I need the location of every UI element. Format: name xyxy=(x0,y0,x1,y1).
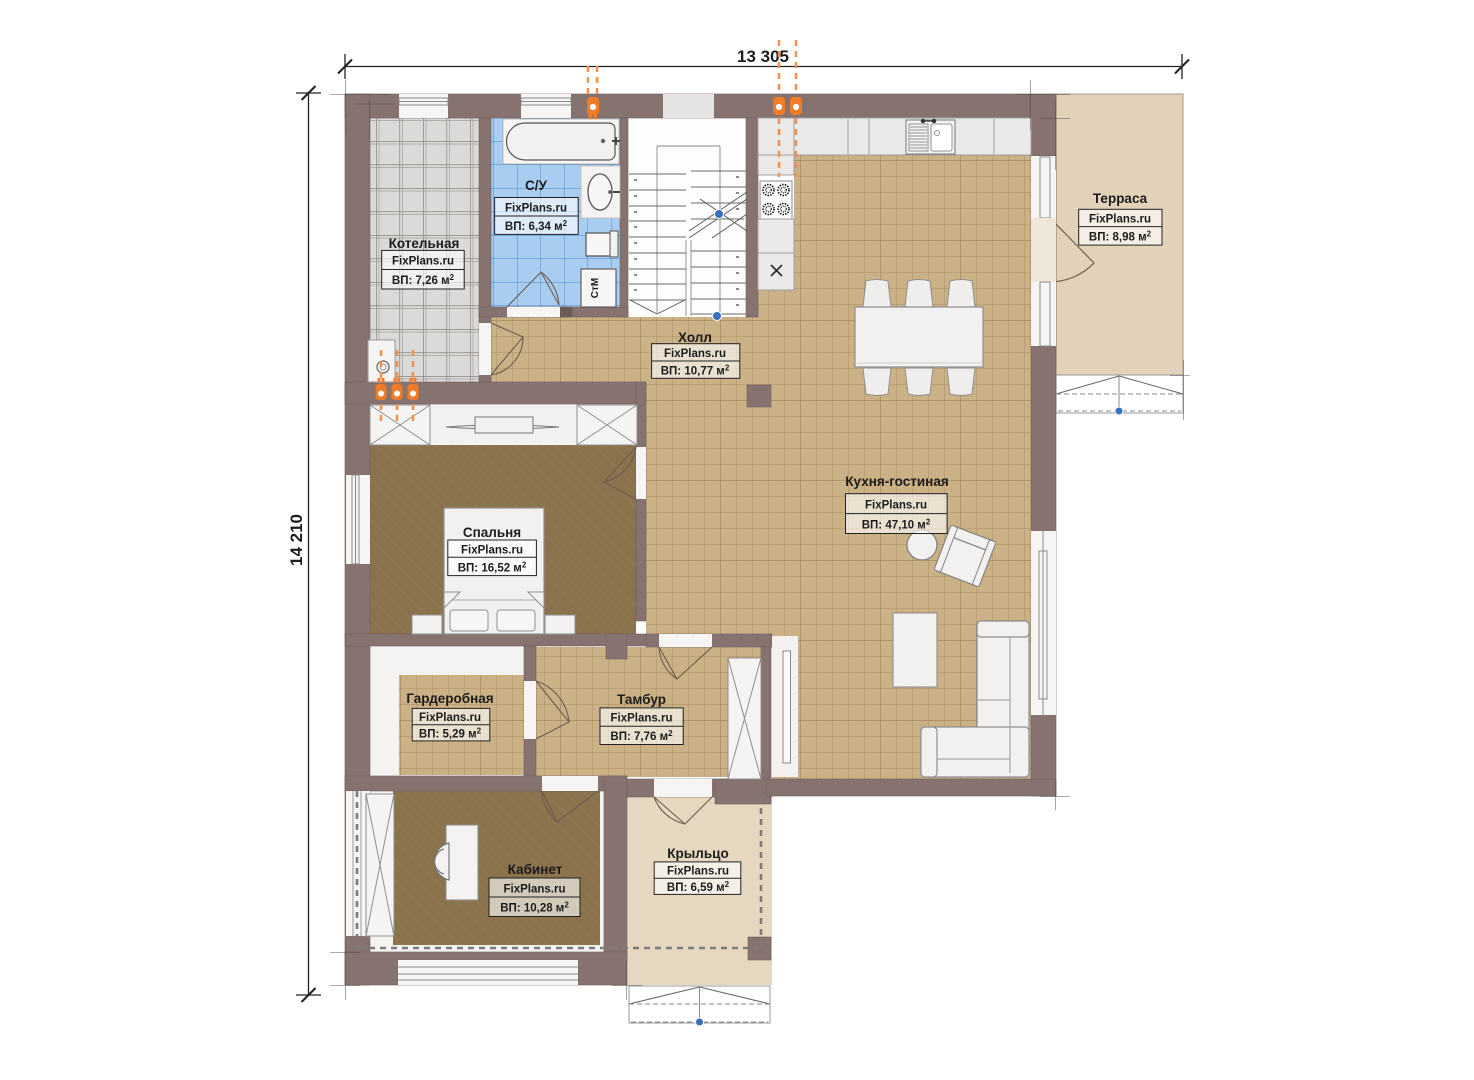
svg-text:ВП: 8,98 м2: ВП: 8,98 м2 xyxy=(1089,230,1152,244)
svg-text:FixPlans.ru: FixPlans.ru xyxy=(667,866,729,878)
svg-text:СтМ: СтМ xyxy=(590,278,601,298)
svg-text:ВП: 10,28 м2: ВП: 10,28 м2 xyxy=(500,901,569,915)
svg-text:С/У: С/У xyxy=(525,178,548,193)
svg-text:FixPlans.ru: FixPlans.ru xyxy=(505,203,567,215)
svg-text:ВП: 5,29 м2: ВП: 5,29 м2 xyxy=(419,727,482,741)
svg-text:FixPlans.ru: FixPlans.ru xyxy=(664,348,726,360)
svg-text:FixPlans.ru: FixPlans.ru xyxy=(1089,214,1151,226)
svg-text:ВП: 6,59 м2: ВП: 6,59 м2 xyxy=(667,880,730,894)
svg-text:ВП: 16,52 м2: ВП: 16,52 м2 xyxy=(458,561,527,575)
svg-text:ВП: 7,26 м2: ВП: 7,26 м2 xyxy=(392,273,455,287)
svg-text:FixPlans.ru: FixPlans.ru xyxy=(611,713,673,725)
svg-text:ВП: 47,10 м2: ВП: 47,10 м2 xyxy=(862,518,931,532)
svg-text:Котельная: Котельная xyxy=(389,236,460,251)
svg-text:13 305: 13 305 xyxy=(737,47,789,66)
svg-text:ВП: 10,77 м2: ВП: 10,77 м2 xyxy=(661,364,730,378)
svg-text:ВП: 6,34 м2: ВП: 6,34 м2 xyxy=(505,219,568,233)
svg-text:Холл: Холл xyxy=(678,330,712,345)
svg-text:ВП: 7,76 м2: ВП: 7,76 м2 xyxy=(610,729,673,743)
svg-text:Терраса: Терраса xyxy=(1093,191,1148,206)
svg-text:Спальня: Спальня xyxy=(463,525,521,540)
svg-text:Крыльцо: Крыльцо xyxy=(667,846,728,861)
svg-text:Кабинет: Кабинет xyxy=(508,862,563,877)
svg-text:14 210: 14 210 xyxy=(287,514,306,566)
svg-text:FixPlans.ru: FixPlans.ru xyxy=(392,256,454,268)
svg-text:Тамбур: Тамбур xyxy=(617,692,666,707)
svg-text:FixPlans.ru: FixPlans.ru xyxy=(419,712,481,724)
svg-text:FixPlans.ru: FixPlans.ru xyxy=(461,545,523,557)
svg-text:FixPlans.ru: FixPlans.ru xyxy=(865,500,927,512)
svg-text:FixPlans.ru: FixPlans.ru xyxy=(504,884,566,896)
svg-text:Гардеробная: Гардеробная xyxy=(406,691,493,706)
svg-text:Кухня-гостиная: Кухня-гостиная xyxy=(845,474,948,489)
